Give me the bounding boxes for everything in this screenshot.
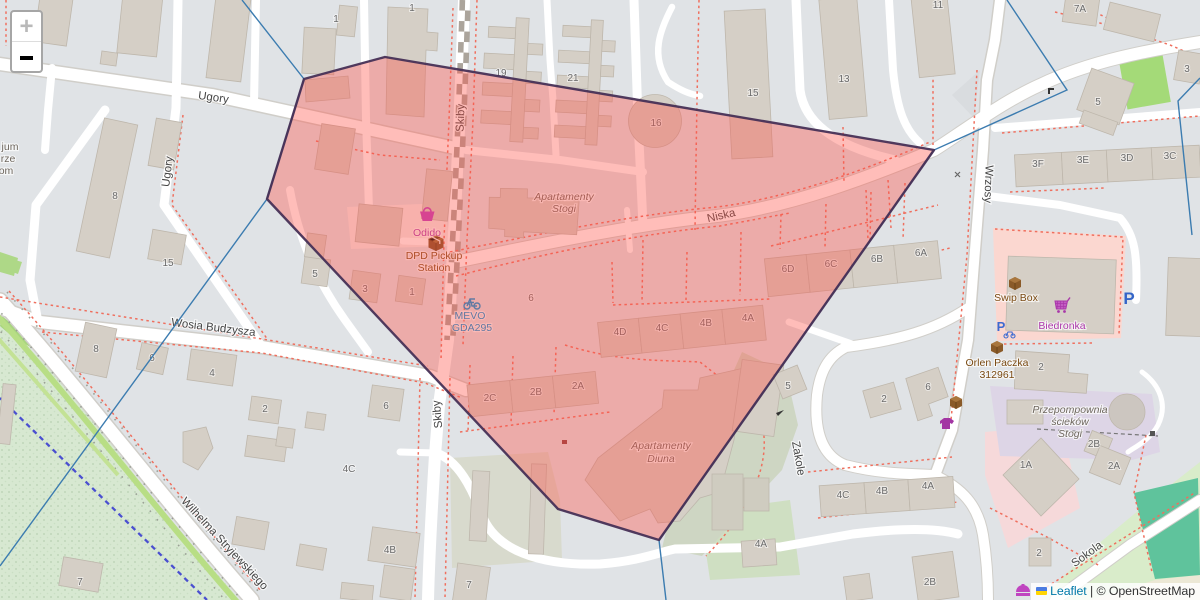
svg-text:4A: 4A [922, 481, 935, 492]
svg-text:6A: 6A [915, 248, 928, 259]
svg-text:1A: 1A [1020, 460, 1033, 471]
svg-text:4C: 4C [837, 490, 850, 501]
svg-text:2: 2 [1036, 548, 1042, 559]
svg-text:312961: 312961 [979, 369, 1014, 381]
svg-text:3E: 3E [1077, 155, 1090, 166]
svg-text:2: 2 [1038, 362, 1044, 373]
svg-text:Biedronka: Biedronka [1038, 320, 1085, 332]
svg-text:3C: 3C [1164, 151, 1177, 162]
svg-text:11: 11 [933, 0, 944, 11]
svg-text:6B: 6B [871, 254, 884, 265]
svg-text:7: 7 [466, 580, 472, 591]
svg-text:rze: rze [1, 153, 16, 165]
svg-text:15: 15 [162, 258, 174, 269]
svg-text:ścieków: ścieków [1051, 416, 1090, 428]
svg-text:2B: 2B [1088, 439, 1101, 450]
svg-text:5: 5 [312, 269, 318, 280]
svg-text:Stogi: Stogi [1058, 428, 1083, 440]
svg-text:4B: 4B [384, 545, 397, 556]
svg-text:13: 13 [838, 74, 850, 85]
svg-text:5: 5 [1095, 97, 1101, 108]
svg-text:21: 21 [567, 73, 579, 84]
svg-text:15: 15 [747, 88, 759, 99]
svg-text:4: 4 [209, 368, 215, 379]
svg-text:6: 6 [925, 382, 931, 393]
svg-text:Skiby: Skiby [431, 399, 445, 428]
svg-text:1: 1 [409, 3, 415, 14]
svg-text:4C: 4C [343, 464, 356, 475]
svg-text:2: 2 [881, 394, 887, 405]
svg-text:om: om [0, 165, 14, 177]
svg-text:3F: 3F [1032, 159, 1044, 170]
svg-text:2A: 2A [1108, 461, 1121, 472]
svg-text:Przepompownia: Przepompownia [1032, 404, 1107, 416]
svg-text:2: 2 [262, 404, 268, 415]
svg-text:Wrzosy: Wrzosy [981, 165, 994, 204]
svg-text:5: 5 [785, 381, 791, 392]
svg-text:Orlen Paczka: Orlen Paczka [965, 357, 1028, 369]
svg-text:4A: 4A [755, 539, 768, 550]
svg-text:1: 1 [333, 14, 339, 25]
svg-text:P: P [1123, 289, 1134, 308]
svg-text:6: 6 [383, 401, 389, 412]
svg-text:3: 3 [1184, 64, 1190, 75]
svg-text:8: 8 [112, 191, 118, 202]
svg-text:Swip Box: Swip Box [994, 292, 1039, 304]
svg-text:8: 8 [93, 344, 99, 355]
svg-text:7: 7 [77, 577, 83, 588]
svg-text:2B: 2B [924, 577, 937, 588]
svg-text:4B: 4B [876, 486, 889, 497]
svg-text:7A: 7A [1074, 4, 1087, 15]
svg-text:jum: jum [1, 141, 19, 153]
svg-text:P: P [997, 319, 1006, 334]
svg-text:3D: 3D [1121, 153, 1134, 164]
